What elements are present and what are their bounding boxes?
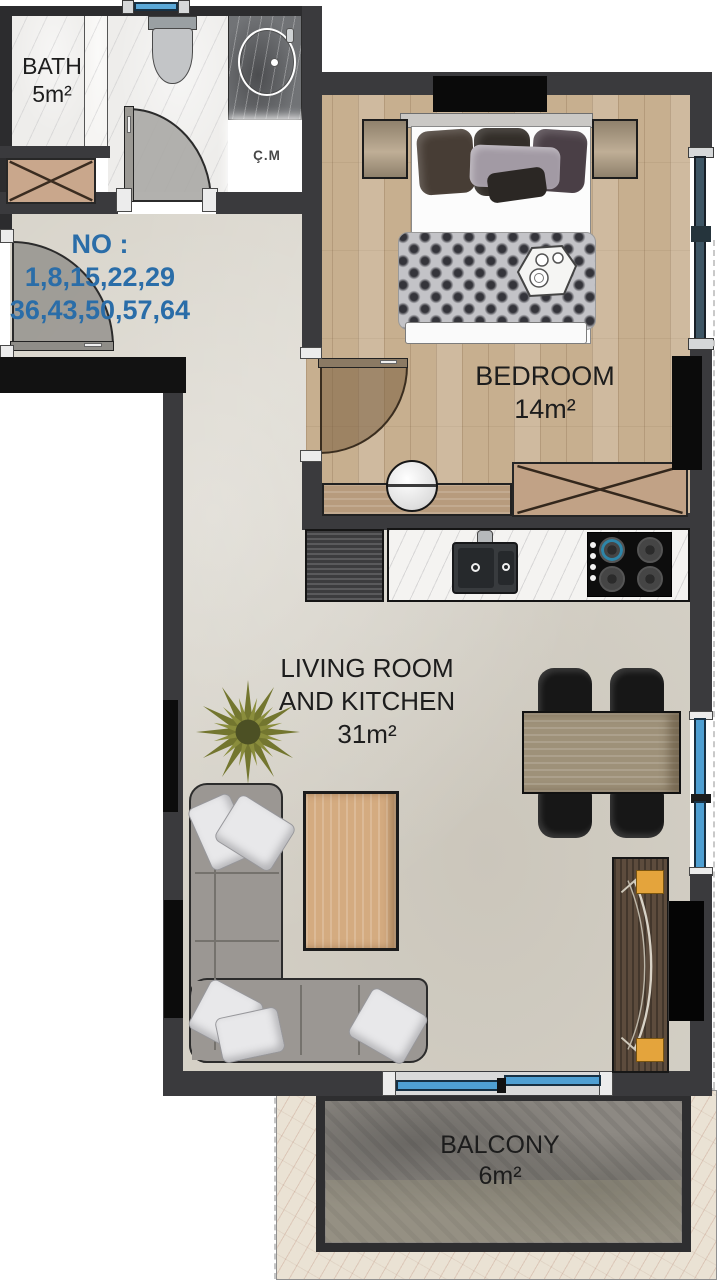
bath-name: BATH [6, 52, 98, 80]
fridge [305, 529, 384, 602]
bedroom-label: BEDROOM 14m² [420, 360, 670, 426]
door-frame [382, 1071, 396, 1096]
floor-plan: BATH 5m² Ç.M NO : 1,8,15,22,29 36,43,50,… [0, 0, 717, 1282]
balcony-area: 6m² [340, 1161, 660, 1192]
bath-area: 5m² [6, 80, 98, 108]
unit-numbers: NO : 1,8,15,22,29 36,43,50,57,64 [0, 228, 200, 327]
dining-table [522, 711, 681, 794]
exterior-white-area [0, 393, 163, 1282]
unit-numbers-row2: 36,43,50,57,64 [0, 294, 200, 327]
shaft-label: Ç.M [232, 148, 302, 164]
living-window [694, 801, 706, 869]
entrance-door-handle [84, 343, 102, 347]
sink-drain [471, 563, 480, 572]
wall-pier [163, 700, 178, 812]
living-name-line2: AND KITCHEN [217, 685, 517, 718]
sliding-door-panel [504, 1075, 601, 1086]
living-name-line1: LIVING ROOM [217, 652, 517, 685]
window-mullion [691, 226, 711, 242]
door-jamb [116, 188, 132, 212]
sofa-seam [195, 940, 279, 942]
bedroom-door-handle [380, 360, 397, 364]
unit-numbers-title: NO : [0, 228, 200, 261]
living-area: 31m² [217, 718, 517, 751]
sliding-door-lock [497, 1078, 506, 1093]
living-tv [668, 901, 704, 1021]
dining-chair [610, 788, 664, 838]
wall-segment [0, 146, 110, 158]
window-frame [688, 338, 714, 350]
shaft-name: Ç.M [232, 148, 302, 164]
nightstand [592, 119, 638, 179]
bed-pillow [416, 128, 476, 196]
bath-window [134, 2, 178, 11]
cooktop-burner [637, 537, 663, 563]
door-jamb [300, 450, 322, 462]
nightstand [362, 119, 408, 179]
wall-segment [0, 357, 186, 393]
cooktop-knob [590, 575, 596, 581]
sofa-seam [195, 872, 279, 874]
unit-numbers-row1: 1,8,15,22,29 [0, 261, 200, 294]
window-frame [178, 0, 190, 14]
living-window [694, 718, 706, 796]
bed-sheet-fold [405, 322, 587, 344]
dining-chair [538, 788, 592, 838]
balcony-name: BALCONY [340, 1130, 660, 1161]
cooktop-burner-lit [599, 537, 625, 563]
site-boundary-dashed [713, 240, 717, 1088]
wall-segment [690, 95, 712, 152]
door-jamb [300, 347, 322, 359]
console-accent [636, 870, 664, 894]
washbasin-drain [270, 58, 279, 67]
stool-seam [388, 484, 436, 487]
living-label: LIVING ROOM AND KITCHEN 31m² [217, 652, 517, 751]
balcony-label: BALCONY 6m² [340, 1130, 660, 1192]
bedroom-tv [433, 76, 547, 112]
bedroom-area: 14m² [420, 393, 670, 426]
cooktop-knob [590, 564, 596, 570]
sliding-door-panel [396, 1080, 499, 1091]
cooktop-burner [637, 566, 663, 592]
door-frame [599, 1071, 613, 1096]
bath-label: BATH 5m² [6, 52, 98, 108]
wall-cabinet-panel [672, 356, 702, 470]
cooktop-burner [599, 566, 625, 592]
bedroom-window [694, 156, 706, 342]
wall-segment [216, 192, 302, 214]
bath-door-handle [127, 116, 131, 133]
coffee-table [303, 791, 399, 951]
washbasin-faucet [286, 28, 294, 43]
console-accent [636, 1038, 664, 1062]
cooktop-knob [590, 553, 596, 559]
window-frame [122, 0, 134, 14]
cooktop-knob [590, 542, 596, 548]
wardrobe-x [512, 462, 688, 517]
sink-drain [502, 563, 510, 571]
sofa-seam [300, 985, 302, 1055]
wall-pier [164, 900, 183, 1018]
wall-segment [302, 6, 322, 353]
shoe-cabinet-x [6, 158, 96, 204]
bedroom-name: BEDROOM [420, 360, 670, 393]
bed-tray [514, 244, 580, 298]
